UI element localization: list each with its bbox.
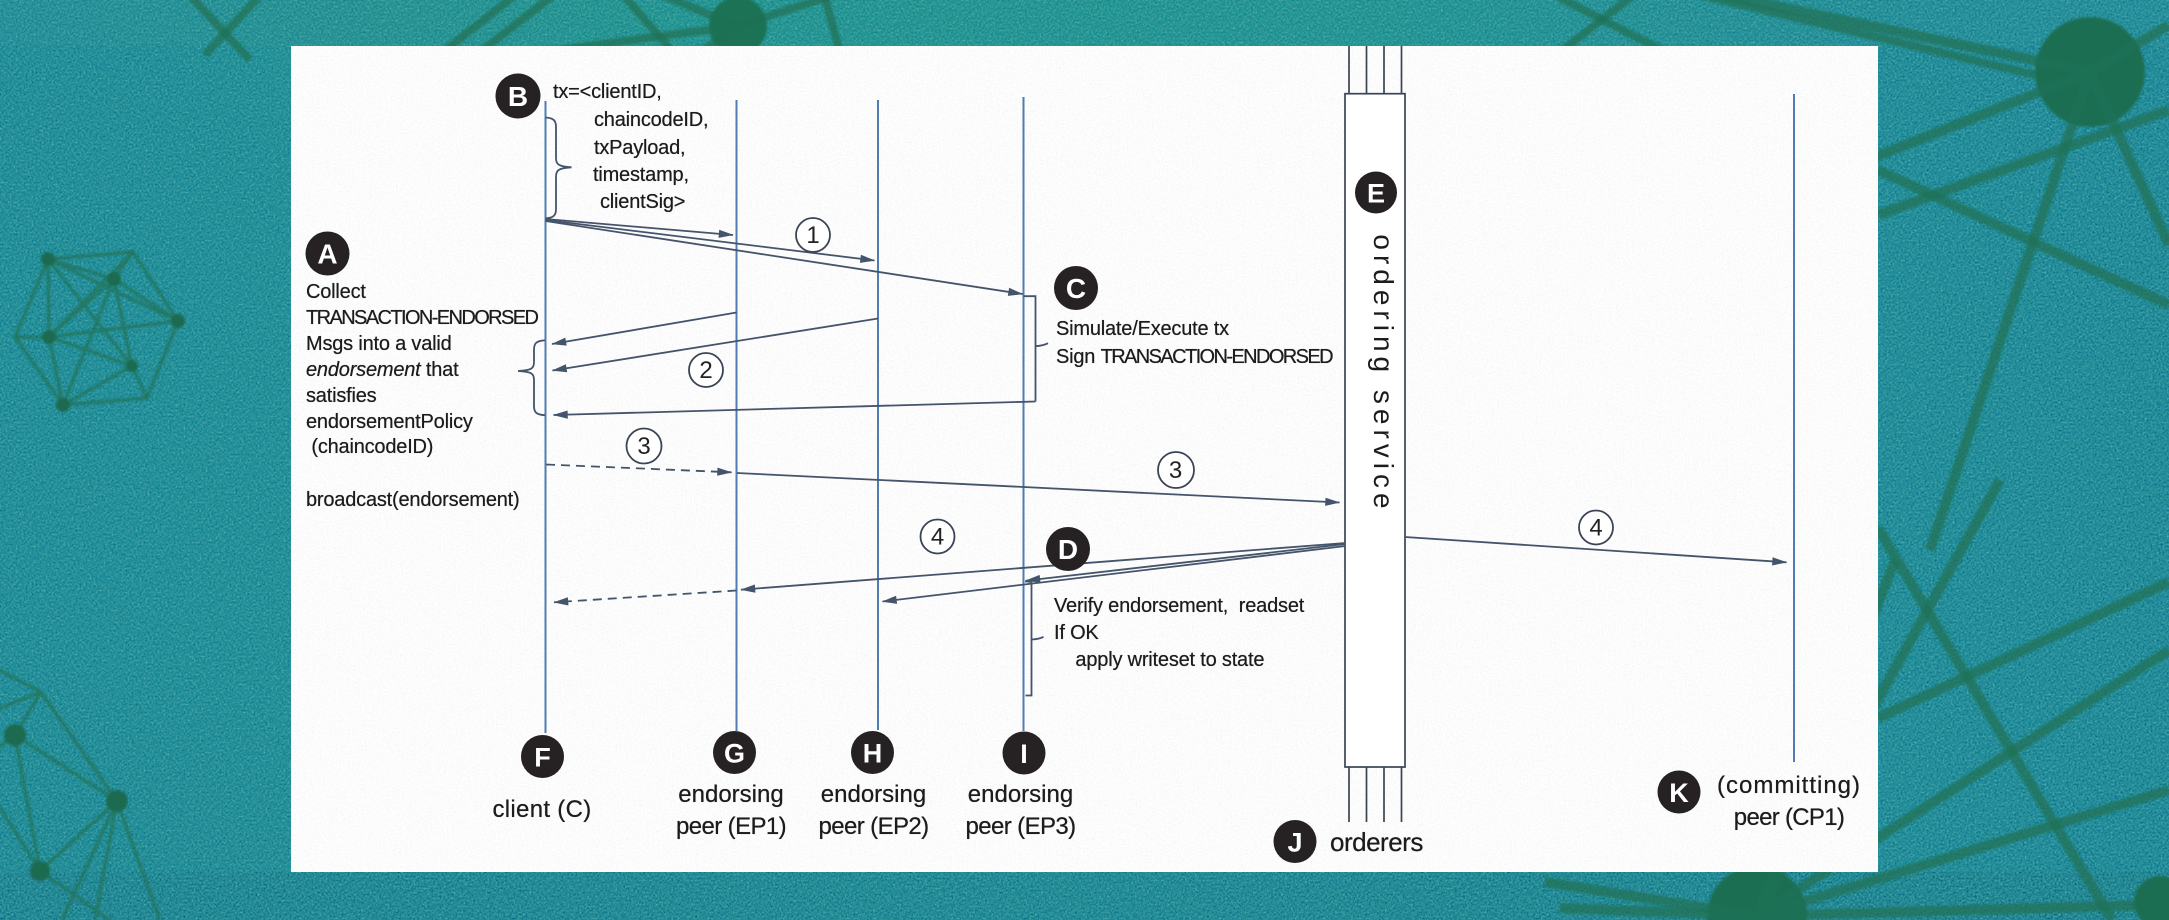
- svg-text:3: 3: [1169, 457, 1182, 484]
- svg-text:E: E: [1367, 179, 1385, 209]
- svg-text:ordering service: ordering service: [1368, 234, 1399, 513]
- svg-text:4: 4: [931, 524, 944, 551]
- svg-text:D: D: [1058, 534, 1078, 565]
- svg-text:K: K: [1669, 778, 1689, 808]
- svg-text:1: 1: [806, 222, 819, 249]
- svg-text:2: 2: [699, 357, 712, 384]
- svg-text:G: G: [724, 739, 745, 769]
- svg-text:I: I: [1020, 739, 1028, 769]
- svg-text:3: 3: [637, 433, 650, 460]
- svg-text:C: C: [1066, 273, 1086, 304]
- svg-text:A: A: [317, 239, 337, 270]
- svg-text:4: 4: [1589, 515, 1602, 542]
- svg-text:F: F: [534, 743, 551, 773]
- svg-text:B: B: [508, 81, 528, 112]
- svg-text:H: H: [863, 739, 883, 769]
- svg-text:J: J: [1287, 828, 1302, 858]
